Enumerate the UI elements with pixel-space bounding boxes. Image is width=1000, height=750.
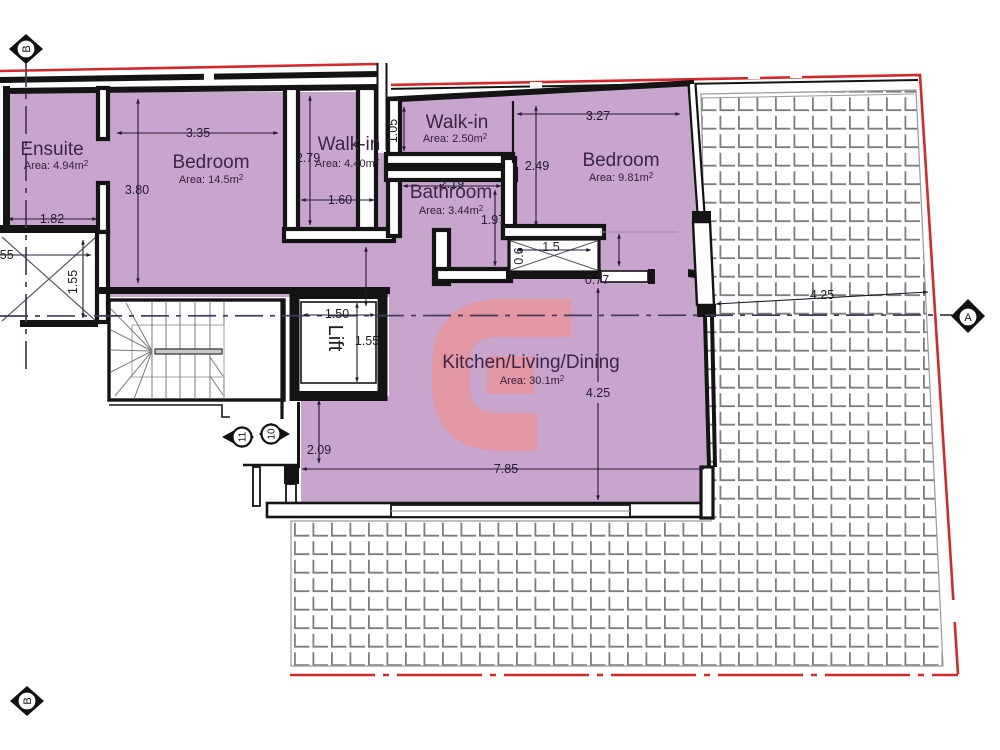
svg-text:1.97: 1.97 (481, 213, 505, 227)
svg-text:.55: .55 (0, 248, 14, 262)
svg-text:0.77: 0.77 (585, 273, 609, 287)
svg-text:2.09: 2.09 (307, 443, 331, 457)
svg-text:Walk-in: Walk-in (426, 112, 489, 133)
svg-text:3.27: 3.27 (586, 109, 610, 123)
svg-text:0.6: 0.6 (512, 247, 526, 264)
svg-text:Kitchen/Living/Dining: Kitchen/Living/Dining (442, 352, 619, 373)
svg-text:3.80: 3.80 (125, 183, 149, 197)
svg-text:2.19: 2.19 (440, 177, 464, 191)
svg-text:Area: 4.40m2: Area: 4.40m2 (315, 157, 380, 170)
svg-text:1.55: 1.55 (355, 334, 379, 348)
svg-text:B: B (22, 697, 34, 704)
svg-text:1.5: 1.5 (542, 240, 559, 254)
svg-text:10: 10 (267, 428, 278, 440)
svg-text:Area: 2.50m2: Area: 2.50m2 (423, 132, 488, 145)
svg-text:B: B (21, 45, 33, 52)
svg-text:Area: 9.81m2: Area: 9.81m2 (589, 171, 654, 184)
svg-text:1.50: 1.50 (325, 307, 349, 321)
svg-text:A: A (964, 312, 972, 324)
svg-text:11: 11 (238, 431, 249, 442)
svg-text:1.55: 1.55 (66, 270, 80, 294)
svg-text:Bedroom: Bedroom (582, 150, 659, 171)
svg-text:Area: 4.94m2: Area: 4.94m2 (24, 159, 89, 172)
svg-text:Area: 14.5m2: Area: 14.5m2 (179, 173, 244, 186)
svg-text:7.85: 7.85 (494, 462, 518, 476)
svg-text:2.49: 2.49 (525, 159, 549, 173)
svg-text:1.82: 1.82 (40, 212, 64, 226)
svg-text:3.35: 3.35 (186, 126, 210, 140)
svg-text:Bedroom: Bedroom (172, 152, 249, 173)
svg-text:1.60: 1.60 (328, 193, 352, 207)
svg-text:Area: 3.44m2: Area: 3.44m2 (419, 204, 484, 217)
svg-text:Walk-in: Walk-in (318, 134, 381, 155)
svg-text:4.25: 4.25 (810, 288, 834, 302)
svg-text:2.79: 2.79 (296, 151, 320, 165)
svg-text:1.05: 1.05 (386, 119, 400, 143)
svg-text:Ensuite: Ensuite (20, 139, 83, 160)
svg-text:4.25: 4.25 (586, 386, 610, 400)
svg-text:Lift: Lift (324, 325, 346, 352)
svg-text:Area: 30.1m2: Area: 30.1m2 (500, 374, 565, 387)
